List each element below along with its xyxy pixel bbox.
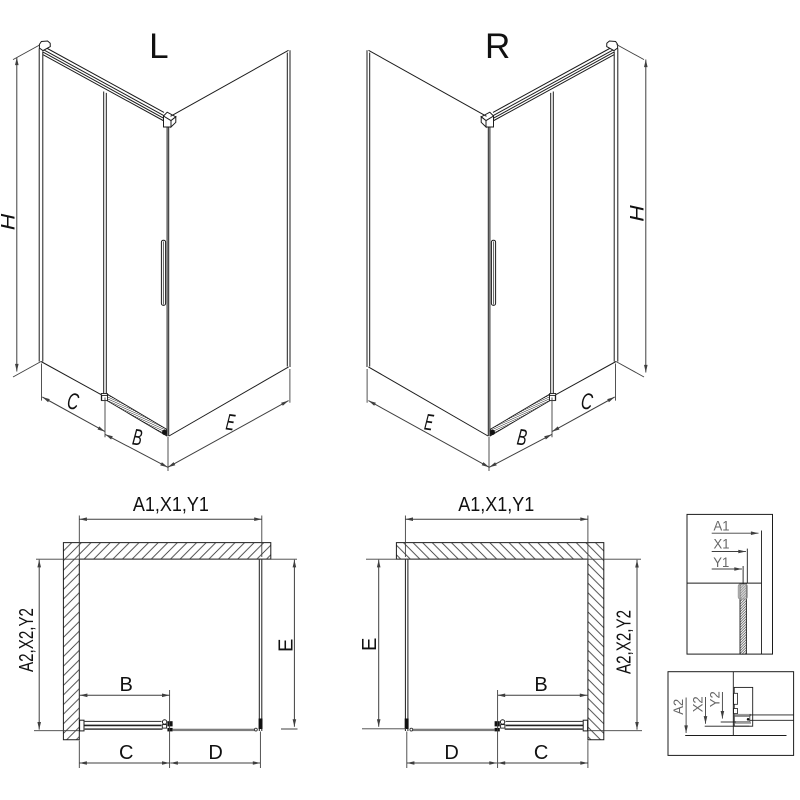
svg-text:R: R [485, 27, 510, 66]
svg-text:D: D [208, 742, 222, 764]
svg-text:B: B [120, 674, 133, 696]
svg-text:B: B [516, 424, 529, 451]
svg-text:E: E [224, 409, 236, 436]
svg-text:Y2: Y2 [706, 691, 722, 707]
svg-text:H: H [0, 213, 19, 230]
svg-text:L: L [149, 27, 168, 66]
svg-text:Y1: Y1 [713, 554, 729, 570]
svg-text:A2,X2,Y2: A2,X2,Y2 [613, 610, 635, 674]
svg-text:A1: A1 [714, 518, 730, 534]
svg-text:H: H [627, 205, 648, 222]
svg-text:E: E [276, 639, 298, 652]
svg-text:E: E [423, 409, 435, 436]
svg-text:A1,X1,Y1: A1,X1,Y1 [458, 494, 534, 516]
svg-text:X1: X1 [714, 536, 730, 552]
svg-text:C: C [579, 387, 594, 414]
svg-text:B: B [534, 674, 547, 696]
svg-text:C: C [66, 387, 81, 414]
svg-text:A2: A2 [670, 699, 686, 715]
svg-text:X2: X2 [690, 696, 706, 712]
svg-text:A1,X1,Y1: A1,X1,Y1 [133, 494, 209, 516]
svg-text:B: B [131, 424, 144, 451]
svg-text:D: D [444, 742, 458, 764]
svg-text:C: C [534, 742, 548, 764]
svg-text:C: C [119, 742, 133, 764]
svg-text:E: E [359, 638, 381, 651]
svg-text:A2,X2,Y2: A2,X2,Y2 [16, 608, 38, 672]
